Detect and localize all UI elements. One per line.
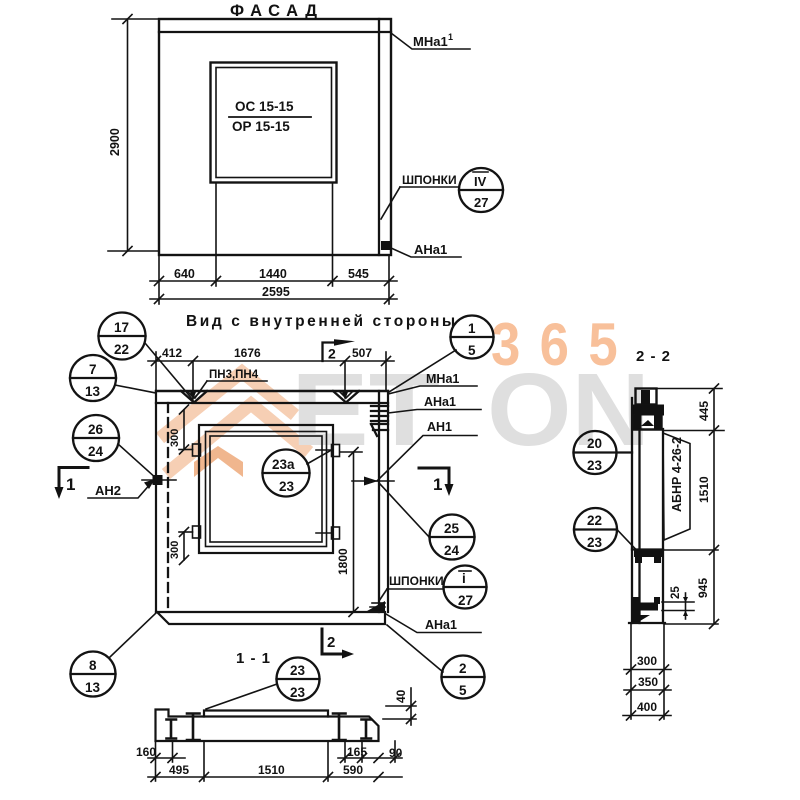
svg-text:7: 7 xyxy=(89,362,97,377)
svg-text:2: 2 xyxy=(328,346,336,362)
svg-text:АНа1: АНа1 xyxy=(424,395,456,409)
svg-text:1676: 1676 xyxy=(234,346,261,360)
svg-text:АН1: АН1 xyxy=(427,420,452,434)
svg-text:1440: 1440 xyxy=(259,267,287,281)
svg-text:ШПОНКИ: ШПОНКИ xyxy=(389,574,444,588)
svg-text:27: 27 xyxy=(474,195,488,210)
svg-text:МНа1: МНа1 xyxy=(426,372,459,386)
svg-text:ПН3,ПН4: ПН3,ПН4 xyxy=(209,369,259,381)
svg-text:545: 545 xyxy=(348,267,369,281)
svg-text:350: 350 xyxy=(638,675,658,689)
svg-text:26: 26 xyxy=(88,422,104,437)
svg-text:160: 160 xyxy=(136,745,156,759)
svg-text:2: 2 xyxy=(327,634,335,651)
svg-text:ON: ON xyxy=(487,352,650,467)
svg-text:1510: 1510 xyxy=(697,476,711,503)
svg-text:5: 5 xyxy=(468,343,476,358)
svg-text:2 - 2: 2 - 2 xyxy=(636,348,671,365)
svg-text:23: 23 xyxy=(290,685,306,700)
svg-text:2: 2 xyxy=(459,661,467,676)
svg-text:АНа1: АНа1 xyxy=(425,618,457,632)
svg-text:1: 1 xyxy=(66,475,75,494)
svg-text:17: 17 xyxy=(114,320,129,335)
svg-text:ОС 15-15: ОС 15-15 xyxy=(235,99,294,114)
svg-text:25: 25 xyxy=(670,586,682,599)
svg-text:300: 300 xyxy=(169,541,181,559)
svg-text:23а: 23а xyxy=(272,457,295,472)
svg-text:АБНР 4-26-2: АБНР 4-26-2 xyxy=(670,437,684,512)
svg-text:2595: 2595 xyxy=(262,285,290,299)
svg-text:445: 445 xyxy=(697,401,711,421)
svg-text:1510: 1510 xyxy=(258,763,285,777)
svg-text:22: 22 xyxy=(114,342,129,357)
svg-text:1: 1 xyxy=(433,475,442,494)
svg-text:23: 23 xyxy=(587,535,603,550)
svg-text:400: 400 xyxy=(637,700,657,714)
svg-text:13: 13 xyxy=(85,384,101,399)
svg-text:i: i xyxy=(462,571,466,586)
svg-text:300: 300 xyxy=(637,654,657,668)
svg-text:590: 590 xyxy=(343,763,363,777)
svg-text:24: 24 xyxy=(444,543,460,558)
svg-text:ФАСАД: ФАСАД xyxy=(230,2,323,20)
svg-text:165: 165 xyxy=(347,745,367,759)
svg-text:90: 90 xyxy=(389,746,403,760)
svg-text:20: 20 xyxy=(587,436,602,451)
svg-text:22: 22 xyxy=(587,513,602,528)
svg-text:27: 27 xyxy=(458,593,473,608)
svg-text:23: 23 xyxy=(290,663,306,678)
svg-text:1: 1 xyxy=(468,321,476,336)
svg-text:8: 8 xyxy=(89,658,97,673)
svg-text:412: 412 xyxy=(162,346,182,360)
svg-text:1: 1 xyxy=(448,32,453,42)
svg-text:507: 507 xyxy=(352,346,372,360)
svg-text:13: 13 xyxy=(85,680,101,695)
svg-text:495: 495 xyxy=(169,763,189,777)
svg-text:АН2: АН2 xyxy=(95,483,121,498)
svg-text:25: 25 xyxy=(444,521,460,536)
svg-text:IV: IV xyxy=(474,174,487,189)
svg-text:1800: 1800 xyxy=(336,548,350,575)
svg-text:23: 23 xyxy=(279,479,295,494)
svg-text:945: 945 xyxy=(696,578,710,598)
svg-text:Вид с внутренней стороны: Вид с внутренней стороны xyxy=(186,313,458,330)
svg-text:ШПОНКИ: ШПОНКИ xyxy=(402,173,457,187)
svg-text:40: 40 xyxy=(394,689,408,703)
svg-text:23: 23 xyxy=(587,458,603,473)
svg-text:АНа1: АНа1 xyxy=(414,242,447,257)
svg-text:640: 640 xyxy=(174,267,195,281)
svg-text:24: 24 xyxy=(88,444,104,459)
svg-text:1 - 1: 1 - 1 xyxy=(236,650,271,667)
svg-text:300: 300 xyxy=(169,429,181,447)
svg-text:5: 5 xyxy=(459,683,467,698)
svg-text:2900: 2900 xyxy=(108,128,122,156)
svg-text:МНа1: МНа1 xyxy=(413,34,448,49)
svg-text:ОР 15-15: ОР 15-15 xyxy=(232,119,290,134)
